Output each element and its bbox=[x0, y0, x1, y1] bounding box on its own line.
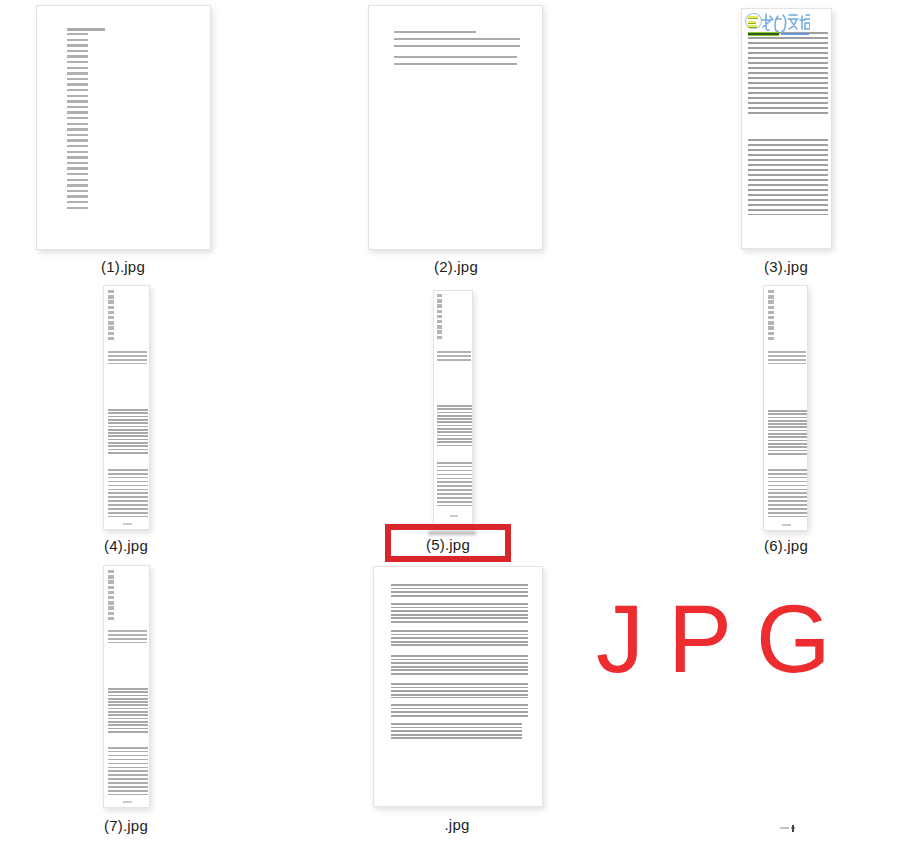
thumbnail-grid: (1).jpg (2).jpg (3).jpg (4).jpg bbox=[0, 0, 900, 842]
jpg-watermark-text: JPG bbox=[596, 591, 855, 687]
thumbnail-image-8[interactable] bbox=[373, 566, 543, 807]
text-block bbox=[437, 351, 471, 363]
text-block bbox=[108, 688, 148, 734]
vertical-text-column bbox=[768, 290, 774, 340]
thumbnail-image-4[interactable] bbox=[103, 285, 150, 530]
thumbnail-image-6[interactable] bbox=[763, 285, 808, 531]
page-footer-mark bbox=[123, 801, 132, 803]
thumbnail-label-7[interactable]: (7).jpg bbox=[71, 817, 181, 834]
stamp-highlight bbox=[748, 25, 757, 28]
paragraph bbox=[391, 603, 528, 624]
thumbnail-image-3[interactable] bbox=[741, 8, 832, 249]
paragraph bbox=[391, 655, 528, 677]
text-block bbox=[108, 409, 148, 455]
stamp-highlight bbox=[748, 16, 758, 19]
text-block bbox=[437, 462, 472, 508]
paragraph bbox=[394, 38, 520, 49]
text-block bbox=[108, 351, 147, 364]
page-footer-mark bbox=[123, 523, 132, 525]
page-footer-mark bbox=[782, 524, 791, 526]
paragraph bbox=[391, 704, 528, 717]
thumbnail-image-5[interactable] bbox=[433, 290, 473, 525]
thumbnail-image-2[interactable] bbox=[368, 5, 543, 250]
inline-blue-text bbox=[781, 33, 809, 35]
inline-green-highlight bbox=[748, 32, 779, 37]
text-block bbox=[768, 469, 807, 517]
paragraph bbox=[391, 584, 528, 597]
vertical-text-column bbox=[108, 570, 114, 620]
thumbnail-label-3[interactable]: (3).jpg bbox=[731, 258, 841, 275]
thumbnail-label-2[interactable]: (2).jpg bbox=[401, 258, 511, 275]
paragraph bbox=[394, 31, 476, 33]
thumbnail-image-7[interactable] bbox=[103, 565, 150, 808]
thumbnail-image-1[interactable] bbox=[36, 5, 211, 250]
text-block bbox=[108, 747, 148, 795]
text-block bbox=[108, 630, 147, 643]
thumbnail-label-6[interactable]: (6).jpg bbox=[731, 537, 841, 554]
text-block bbox=[437, 405, 472, 448]
thumbnail-label-4[interactable]: (4).jpg bbox=[71, 537, 181, 554]
paragraph bbox=[391, 683, 528, 698]
text-block bbox=[748, 32, 828, 117]
paragraph bbox=[394, 56, 517, 67]
text-block bbox=[768, 351, 806, 364]
stamp-highlight bbox=[748, 21, 756, 24]
vertical-text-column bbox=[108, 290, 114, 340]
text-line bbox=[67, 28, 105, 31]
vertical-text-column bbox=[437, 294, 442, 340]
thumbnail-label-5[interactable]: (5).jpg bbox=[393, 536, 503, 553]
paragraph bbox=[391, 630, 528, 648]
page-footer-mark bbox=[450, 515, 458, 517]
text-lines-column bbox=[67, 33, 88, 211]
thumbnail-label-8[interactable]: .jpg bbox=[402, 816, 512, 833]
text-block bbox=[768, 410, 807, 455]
text-block bbox=[108, 469, 148, 517]
partial-label-fragment bbox=[780, 824, 802, 833]
text-block bbox=[748, 139, 828, 215]
paragraph bbox=[391, 723, 522, 740]
thumbnail-label-1[interactable]: (1).jpg bbox=[68, 258, 178, 275]
